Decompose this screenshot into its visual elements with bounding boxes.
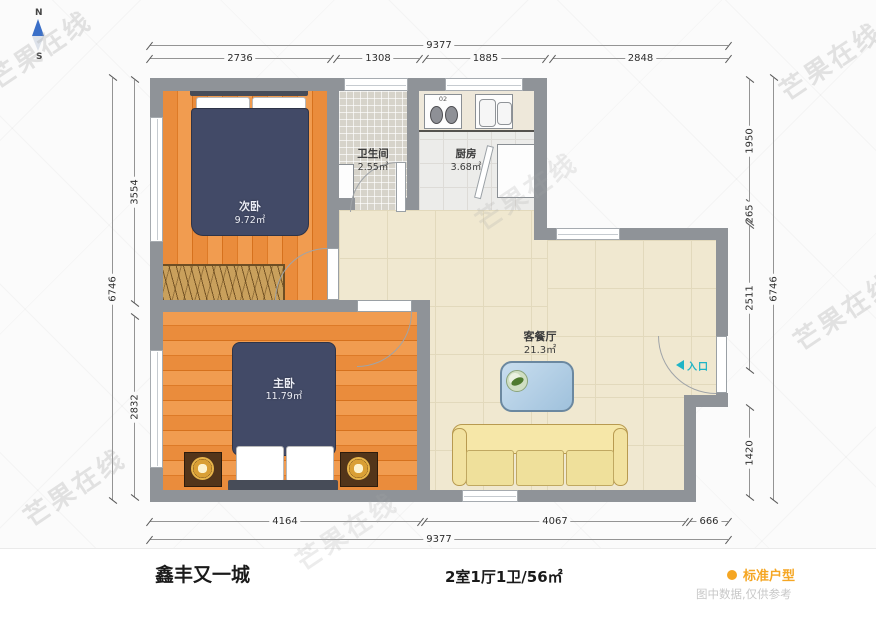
secondary-bedroom-door-leaf [327,248,339,300]
secondary-bed-duvet: 次卧 9.72㎡ [191,108,309,236]
dim-top-total: 9377 [150,45,728,46]
legend-label: 标准户型 [743,565,795,584]
dim-right-segment: 265 [749,206,750,222]
stove: 02 [424,94,462,129]
dim-left-total: 6746 [112,78,113,500]
dim-bottom-segment: 4067 [425,521,685,522]
window [150,350,163,468]
sofa-cushion [466,450,514,486]
dim-top-segment: 2736 [150,58,330,59]
secondary-bedroom-label: 次卧 9.72㎡ [192,200,308,227]
nightstand [184,452,222,487]
dim-bottom-total: 9377 [150,539,728,540]
plant-icon [506,370,528,392]
entrance-label: 入口 [687,358,709,373]
dim-top-segment: 2848 [553,58,728,59]
disclaimer-text: 图中数据,仅供参考 [696,586,792,602]
master-bedroom-label: 主卧 11.79㎡ [233,377,335,404]
sofa-cushion [516,450,564,486]
wall [327,78,339,248]
window [462,490,518,502]
dim-bottom-segment: 4164 [150,521,420,522]
watermark-text: 芒果在线 [786,263,876,359]
window [344,78,408,91]
floorplan-page: N S 次卧 9.72㎡ 主卧 11.79㎡ [0,0,876,620]
lamp-icon [347,457,370,480]
sofa-seat-cushions [466,450,614,486]
dim-left-segment: 2832 [134,317,135,497]
sink-basin-icon [497,102,512,125]
pillow [236,446,284,482]
sofa-cushion [566,450,614,486]
master-bed-duvet: 主卧 11.79㎡ [232,342,336,456]
entrance-marker: 入口 [676,358,720,372]
sofa [452,424,628,488]
watermark-text: 芒果在线 [16,439,133,535]
kitchen-sink [475,94,513,129]
wall [150,300,357,312]
dim-left-segment: 3554 [134,80,135,303]
stove-burner-icon [430,106,443,124]
footer-divider [0,548,876,549]
dim-top-segment: 1885 [426,58,545,59]
community-name: 鑫丰又一城 [155,560,250,587]
dim-right-segment: 1950 [749,80,750,202]
bathroom-door-leaf [396,162,406,212]
wall [407,78,419,210]
dim-right-segment: 1420 [749,408,750,497]
wall [684,395,696,500]
dim-top-segment: 1308 [337,58,419,59]
plant-leaf-icon [510,376,525,388]
compass-needle-icon [32,19,44,36]
wall [417,300,430,490]
compass-north-label: N [35,8,43,18]
legend-dot-icon [727,570,737,580]
master-bedroom-door-leaf [357,300,412,312]
sofa-arm [452,428,467,486]
wall [150,490,696,502]
compass-south-label: S [36,52,42,62]
wall [534,78,547,240]
stove-burner-icon [445,106,458,124]
window [556,228,620,240]
dim-right-segment: 2511 [749,226,750,370]
sofa-arm [613,428,628,486]
window [445,78,523,91]
entrance-arrow-icon [676,360,684,370]
stove-label: 02 [425,95,461,103]
footer-background [0,549,876,620]
compass-needle-tail-icon [32,36,44,51]
window [150,117,163,242]
nightstand [340,452,378,487]
pillow [286,446,334,482]
dim-right-total: 6746 [773,78,774,500]
lamp-icon [191,457,214,480]
refrigerator [497,144,536,198]
wall [716,228,728,336]
watermark-text: 芒果在线 [772,13,876,109]
layout-summary: 2室1厅1卫/56㎡ [445,566,563,587]
dim-bottom-segment: 666 [690,521,728,522]
compass: N S [26,8,52,64]
sink-basin-icon [479,99,496,127]
